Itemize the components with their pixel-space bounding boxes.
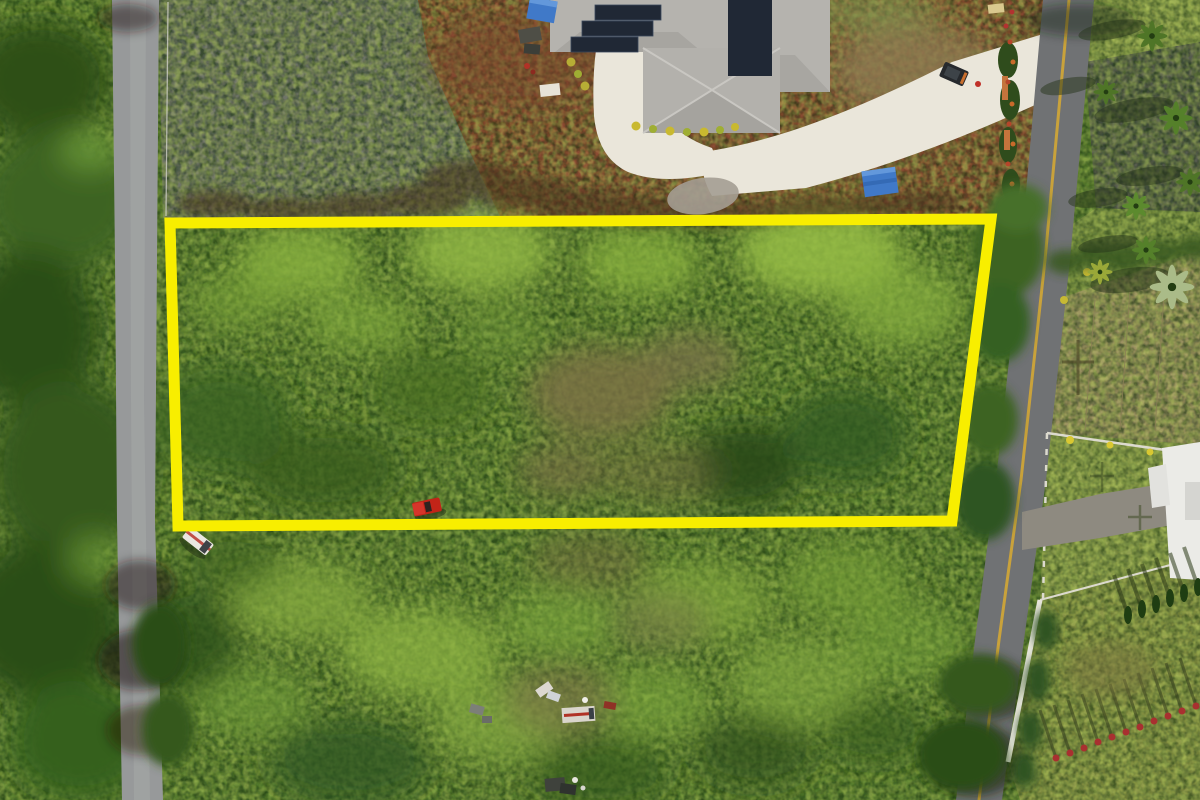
orange-wall-cap	[1004, 130, 1010, 150]
abandoned-van	[561, 706, 595, 723]
field-brown-patch	[1065, 642, 1155, 698]
solar-array-row	[582, 21, 653, 36]
aerial-photo-canvas	[0, 0, 1200, 800]
red-debris	[531, 70, 536, 75]
red-debris	[524, 63, 530, 69]
red-debris	[975, 81, 981, 87]
palm-tree	[1093, 79, 1118, 104]
tan-mat	[988, 3, 1005, 14]
roof-panel-lines	[1185, 482, 1200, 520]
orange-wall-cap	[1002, 76, 1008, 100]
solar-array-row	[595, 5, 661, 20]
dark-roof-section	[728, 0, 772, 76]
aerial-photo	[0, 0, 1200, 800]
solar-array-row	[571, 37, 638, 52]
croton-plant	[1087, 259, 1112, 284]
blue-tarp-lower	[861, 167, 898, 197]
silver-palm	[1150, 265, 1195, 310]
yard-debris	[524, 43, 541, 54]
palm-tree	[1159, 101, 1193, 135]
palm-tree	[1132, 236, 1160, 264]
palm-tree	[1122, 192, 1150, 220]
white-mat	[539, 83, 560, 97]
palm-tree	[1137, 21, 1168, 52]
